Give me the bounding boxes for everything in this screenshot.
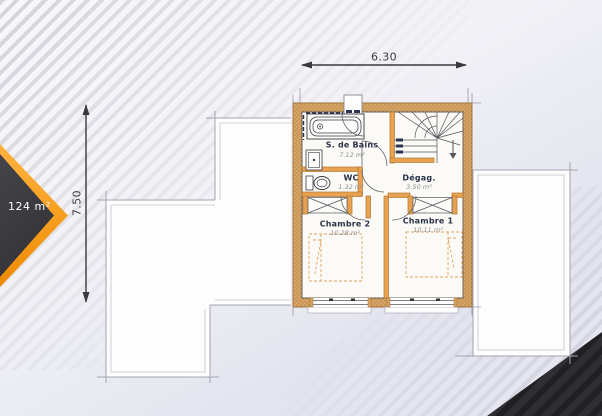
dimension-width-arrow (300, 62, 468, 104)
dimension-height-arrow (83, 104, 90, 303)
room-label-landing: Dégag. (402, 174, 435, 183)
floor-plan-drawing (0, 0, 602, 416)
floor-plan (293, 95, 472, 313)
dimension-height-label: 7.50 (71, 190, 84, 216)
window-bedroom2 (308, 298, 371, 313)
room-area-bathroom: 7.12 m² (339, 151, 364, 159)
toilet-icon (306, 176, 330, 190)
room-area-wc: 1.32 m² (338, 183, 363, 191)
sink-icon (306, 150, 322, 170)
room-area-landing: 3.50 m² (406, 183, 431, 191)
room-area-bedroom1: 10.11 m² (413, 226, 443, 234)
closet-bedroom2 (303, 196, 352, 214)
bathtub-icon (307, 114, 364, 139)
roof-outline-left (97, 111, 291, 383)
room-label-wc: WC (343, 174, 358, 183)
room-area-bedroom2: 10.28 m² (330, 229, 360, 237)
floor-plan-page: 124 m² (0, 0, 602, 416)
window-bedroom1 (385, 298, 458, 313)
room-label-bedroom2: Chambre 2 (320, 220, 371, 229)
closet-bedroom1 (408, 196, 457, 214)
chimney (344, 95, 362, 114)
room-label-bedroom1: Chambre 1 (403, 217, 454, 226)
roof-outline-right (455, 162, 578, 364)
dimension-width-label: 6.30 (371, 51, 397, 64)
room-label-bathroom: S. de Bains (326, 141, 378, 150)
